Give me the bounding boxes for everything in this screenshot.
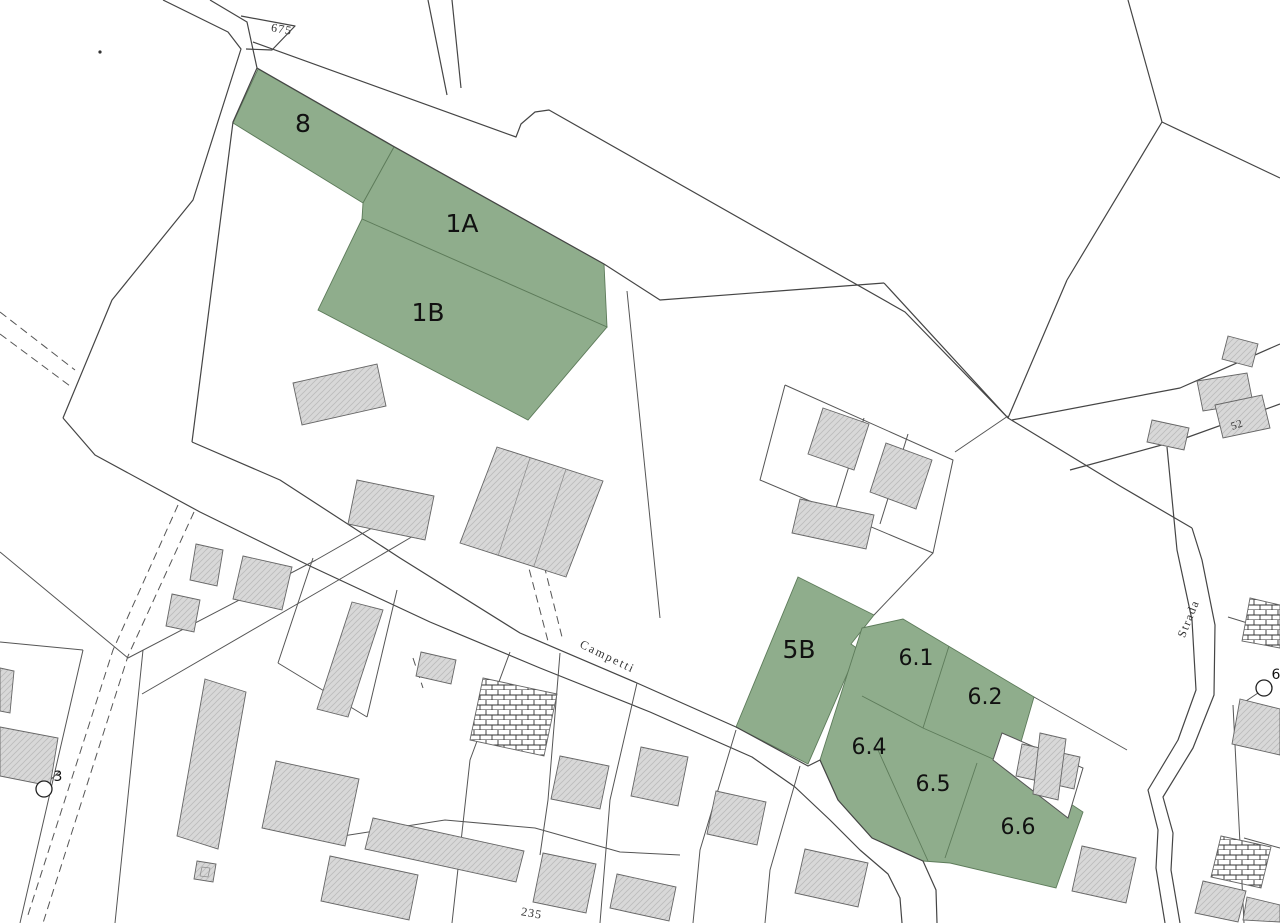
map-label-675: 675 [270, 20, 293, 37]
building [0, 668, 14, 713]
building [460, 447, 603, 577]
building [631, 747, 688, 806]
parcel-label-1B: 1B [411, 298, 444, 327]
building [194, 861, 216, 882]
road-edge-left-road-east-edge [192, 0, 257, 442]
survey-point-label: 3 [54, 769, 63, 785]
road-edge-topright-line-2 [1162, 122, 1280, 178]
building [177, 679, 246, 849]
parcel-boundary-line [0, 552, 128, 658]
building [870, 443, 932, 509]
building [0, 727, 58, 786]
parcel-label-5B: 5B [782, 635, 815, 664]
road-edge-left-road-west-edge [63, 0, 241, 418]
road-edge-topright-line-1 [1128, 0, 1162, 122]
road-edge-topright-line-3 [1067, 122, 1162, 280]
brick-building [1211, 836, 1271, 888]
building [166, 594, 200, 632]
labels-layer: 81A1B5B6.16.26.46.56.6675CampettiStrada5… [270, 20, 1245, 921]
building [1147, 420, 1189, 450]
survey-point-marker [1256, 680, 1272, 696]
road-edge-strada-east-edge [1163, 528, 1215, 923]
road-edge-center-parcel-top [604, 264, 884, 300]
building [321, 856, 418, 920]
map-label-235: 235 [520, 904, 543, 921]
parcel-label-1A: 1A [445, 209, 478, 238]
building [416, 652, 456, 684]
building [1243, 897, 1280, 922]
survey-point-label: 6 [1272, 667, 1280, 683]
building [293, 364, 386, 425]
dashed-track-line [27, 505, 178, 918]
survey-dot [98, 50, 101, 53]
dashed-track-line [43, 512, 194, 923]
road-edge-top-branch-left [428, 0, 447, 95]
survey-point-marker [36, 781, 52, 797]
road-edge-v-junction-left [884, 283, 1008, 418]
parcel-label-6.4: 6.4 [852, 735, 887, 760]
building [795, 849, 868, 907]
parcel-boundary-line [627, 291, 660, 618]
building [1072, 846, 1136, 903]
parcel-label-6.1: 6.1 [899, 646, 934, 671]
road-edge-top-branch-right [452, 0, 461, 88]
building [808, 408, 869, 470]
building [610, 874, 676, 921]
building [233, 556, 292, 610]
parcel-boundary-line [874, 553, 933, 615]
parcel-label-8: 8 [295, 109, 311, 138]
building [348, 480, 434, 540]
building [551, 756, 609, 809]
road-edge-v-junction-right [1008, 280, 1067, 418]
parcel-label-6.6: 6.6 [1001, 815, 1036, 840]
building [317, 602, 383, 717]
brick-building [1242, 598, 1280, 648]
parcel-8[interactable] [233, 69, 394, 203]
brick-building [470, 678, 557, 756]
parcel-boundary-line [0, 642, 83, 650]
building [1222, 336, 1258, 367]
building [707, 791, 766, 845]
parcel-label-6.5: 6.5 [916, 772, 951, 797]
building [262, 761, 359, 846]
parcel-boundary-line [765, 766, 800, 923]
building [1195, 881, 1246, 922]
building [792, 499, 874, 549]
cadastral-map-canvas: 36 81A1B5B6.16.26.46.56.6675CampettiStra… [0, 0, 1280, 923]
parcel-label-6.2: 6.2 [968, 685, 1003, 710]
dashed-track-line [0, 334, 70, 386]
building [533, 853, 596, 913]
building [1232, 699, 1280, 755]
parcel-boundary-line [1246, 693, 1258, 701]
map-label-strada: Strada [1174, 597, 1202, 639]
building [190, 544, 223, 586]
cadastral-map: 36 81A1B5B6.16.26.46.56.6675CampettiStra… [0, 0, 1280, 923]
parcel-boundary-line [115, 650, 143, 923]
parcel-boundary-line [955, 416, 1008, 452]
